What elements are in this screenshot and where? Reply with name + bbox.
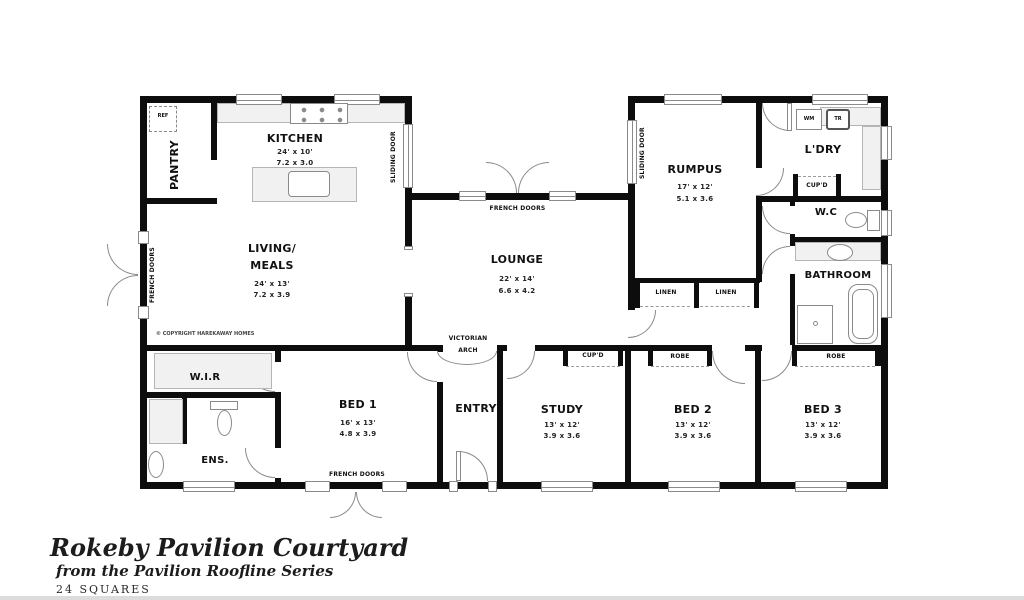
room-dim-metric: 3.9 x 3.6	[793, 432, 853, 440]
cooktop	[290, 103, 348, 124]
label-fridge: REF	[150, 113, 176, 119]
door-swing-arc	[458, 451, 488, 481]
window	[236, 94, 282, 105]
wall	[140, 96, 147, 489]
room-dim-metric: 3.9 x 3.6	[532, 432, 592, 440]
room-dim-metric: 6.6 x 4.2	[487, 287, 547, 295]
wall	[756, 198, 762, 282]
wall	[790, 202, 795, 206]
cupboard-front	[651, 366, 709, 367]
door-swing-arc	[486, 162, 517, 193]
wir-shelving	[154, 353, 272, 389]
wall	[792, 345, 881, 351]
room-dim-metric: 4.8 x 3.9	[328, 430, 388, 438]
label-cupboard: CUP'D	[565, 352, 621, 359]
room-label-entry: ENTRY	[442, 402, 510, 415]
wall	[437, 382, 443, 489]
wall	[405, 193, 635, 200]
wall	[275, 478, 281, 489]
door-jamb	[305, 481, 330, 492]
sliding-door	[627, 120, 637, 184]
window	[668, 481, 720, 492]
label-linen: LINEN	[697, 289, 755, 296]
wall	[275, 345, 281, 362]
ensuite-shower	[149, 399, 183, 444]
label-sliding-door: SLIDING DOOR	[639, 122, 649, 184]
door-swing-arc	[756, 168, 784, 196]
door-jamb	[138, 231, 149, 244]
label-french-doors: FRENCH DOORS	[480, 205, 555, 212]
room-label-laundry: L'DRY	[795, 143, 851, 156]
label-victorian-arch: VICTORIAN	[438, 335, 498, 342]
door-jamb	[138, 306, 149, 319]
door-jamb	[382, 481, 407, 492]
door-swing-arc	[356, 492, 382, 518]
room-label-rumpus: RUMPUS	[645, 163, 745, 176]
room-label-lounge: LOUNGE	[467, 253, 567, 266]
window	[183, 481, 235, 492]
room-dim-metric: 7.2 x 3.0	[265, 159, 325, 167]
label-sliding-door: SLIDING DOOR	[390, 126, 400, 188]
wall	[405, 200, 412, 248]
bathtub-inner	[852, 289, 874, 339]
basin	[827, 244, 853, 261]
window	[881, 210, 892, 236]
room-label-kitchen: KITCHEN	[245, 132, 345, 145]
window	[549, 191, 576, 201]
window	[795, 481, 847, 492]
wall	[497, 345, 503, 489]
plan-size-label: 24 SQUARES	[56, 583, 256, 596]
door-swing-arc	[762, 246, 790, 274]
toilet-cistern	[867, 210, 880, 231]
wall	[563, 345, 623, 351]
door-leaf	[787, 103, 792, 131]
door-swing-arc	[762, 351, 792, 381]
wall	[756, 96, 762, 168]
room-label-bed3: BED 3	[790, 403, 856, 416]
room-dim-metric: 5.1 x 3.6	[665, 195, 725, 203]
cupboard-front	[566, 366, 620, 367]
label-french-doors: FRENCH DOORS	[149, 238, 159, 312]
toilet-cistern	[210, 401, 238, 410]
label-robe: ROBE	[797, 353, 875, 360]
window	[459, 191, 486, 201]
plan-subtitle: from the Pavilion Roofline Series	[56, 562, 333, 580]
window	[812, 94, 868, 105]
kitchen-sink	[288, 171, 330, 197]
room-label-wir: W.I.R	[180, 372, 230, 383]
wall	[756, 196, 881, 202]
room-dim-imperial: 13' x 12'	[532, 421, 592, 429]
door-swing-arc	[330, 492, 356, 518]
door-swing-arc	[107, 275, 138, 306]
wall	[147, 345, 280, 351]
window	[664, 94, 722, 105]
wall	[755, 345, 761, 489]
wall	[790, 274, 795, 345]
room-label-bathroom: BATHROOM	[797, 270, 879, 281]
shower-drain	[813, 321, 818, 326]
door-swing-arc	[107, 244, 138, 275]
room-dim-imperial: 17' x 12'	[665, 183, 725, 191]
basin	[148, 451, 164, 478]
room-dim-imperial: 16' x 13'	[328, 419, 388, 427]
door-swing-arc	[762, 103, 790, 131]
window	[881, 264, 892, 318]
cupboard-front	[700, 306, 750, 307]
toilet-bowl	[217, 410, 232, 436]
window	[541, 481, 593, 492]
wall	[875, 351, 881, 366]
door-leaf	[456, 451, 461, 481]
room-dim-imperial: 22' x 14'	[487, 275, 547, 283]
label-french-doors: FRENCH DOORS	[318, 471, 396, 478]
opening-jamb	[404, 246, 413, 250]
toilet-bowl	[845, 212, 867, 228]
label-cupboard: CUP'D	[795, 182, 839, 189]
wall	[147, 392, 281, 398]
label-linen: LINEN	[637, 289, 695, 296]
window	[881, 126, 892, 160]
room-label-study: STUDY	[530, 403, 594, 416]
room-label-wc: W.C	[808, 207, 844, 218]
door-swing-arc	[712, 351, 745, 384]
wall	[405, 296, 412, 345]
wall	[535, 345, 563, 351]
wall	[648, 345, 712, 351]
door-swing-arc	[407, 352, 437, 382]
room-dim-metric: 3.9 x 3.6	[663, 432, 723, 440]
door-jamb	[449, 481, 458, 492]
door-jamb	[488, 481, 497, 492]
label-trough: TR	[827, 116, 849, 122]
room-dim-imperial: 13' x 12'	[663, 421, 723, 429]
laundry-bench	[862, 126, 881, 190]
room-dim-imperial: 13' x 12'	[793, 421, 853, 429]
cupboard-front	[795, 366, 875, 367]
wall	[140, 482, 888, 489]
opening-jamb	[404, 293, 413, 297]
room-label-ensuite: ENS.	[193, 455, 237, 466]
wall	[280, 345, 437, 351]
door-swing-arc	[507, 351, 535, 379]
room-dim-metric: 7.2 x 3.9	[237, 291, 307, 299]
label-washing-machine: WM	[797, 116, 821, 122]
label-victorian-arch: ARCH	[438, 347, 498, 354]
bottom-strip	[0, 596, 1024, 600]
label-robe: ROBE	[651, 353, 709, 360]
door-swing-arc	[628, 310, 656, 338]
sliding-door	[403, 124, 413, 188]
room-label-living: LIVING/	[222, 242, 322, 255]
plan-title: Rokeby Pavilion Courtyard	[50, 533, 408, 562]
room-label-bed2: BED 2	[660, 403, 726, 416]
copyright-note: © COPYRIGHT HAREKAWAY HOMES	[156, 331, 286, 337]
room-label-meals: MEALS	[222, 259, 322, 272]
door-swing-arc	[762, 206, 790, 234]
room-dim-imperial: 24' x 13'	[237, 280, 307, 288]
room-label-pantry: PANTRY	[168, 122, 184, 208]
wall	[625, 345, 631, 489]
room-dim-imperial: 24' x 10'	[265, 148, 325, 156]
door-swing-arc	[518, 162, 549, 193]
wall	[275, 392, 281, 448]
cupboard-front	[798, 176, 836, 177]
cupboard-front	[640, 306, 690, 307]
floor-plan-sheet: KITCHEN 24' x 10' 7.2 x 3.0 PANTRY LIVIN…	[0, 0, 1024, 600]
room-label-bed1: BED 1	[320, 398, 396, 411]
door-swing-arc	[245, 448, 275, 478]
